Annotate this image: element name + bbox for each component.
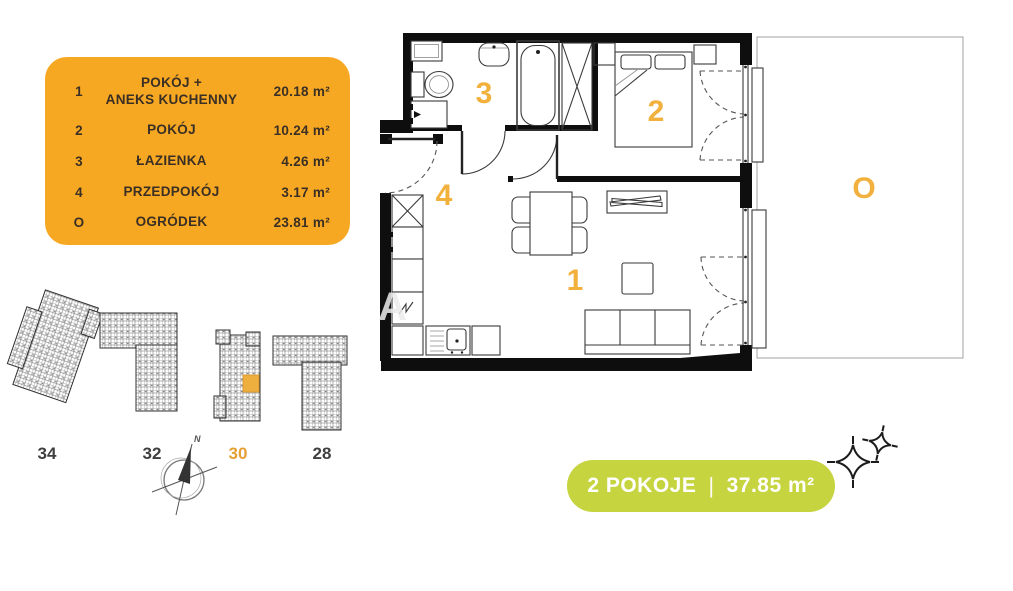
legend-room-number: 4: [61, 185, 97, 200]
legend-room-name: PRZEDPOKÓJ: [97, 184, 246, 201]
legend-room-number: 3: [61, 154, 97, 169]
legend-room-number: 1: [61, 84, 97, 99]
dining-table: [530, 192, 572, 255]
legend-row: 3 ŁAZIENKA 4.26 m²: [61, 153, 330, 170]
nightstand-right: [694, 45, 716, 64]
legend-room-number: O: [61, 215, 97, 230]
watermark-letter: A: [378, 285, 407, 329]
bedroom-door: [513, 135, 557, 179]
bathtub: [517, 41, 559, 130]
wardrobe-closet: [562, 43, 592, 130]
bathroom-sink: [479, 43, 509, 66]
building-34[interactable]: [2, 286, 105, 405]
room-label-living: 1: [567, 264, 584, 297]
compass-icon: N: [152, 434, 217, 515]
legend-room-area: 20.18 m²: [246, 84, 330, 99]
badge-area-label: 37.85 m²: [727, 474, 815, 498]
legend-room-area: 10.24 m²: [246, 123, 330, 138]
highlighted-unit: [243, 375, 259, 392]
building-30[interactable]: [214, 330, 260, 421]
building-32[interactable]: [100, 313, 177, 411]
building-28[interactable]: [273, 336, 347, 430]
floorplan-page: 1 POKÓJ + ANEKS KUCHENNY 20.18 m² 2 POKÓ…: [0, 0, 1013, 591]
legend-room-name: ŁAZIENKA: [97, 153, 246, 170]
room-label-bathroom: 3: [476, 77, 493, 110]
sofa: [585, 310, 690, 354]
compass-north-label: N: [194, 434, 201, 444]
legend-room-number: 2: [61, 123, 97, 138]
room-label-garden: O: [852, 172, 875, 205]
bathroom-shelf: [411, 41, 442, 61]
room-label-bedroom: 2: [648, 95, 665, 128]
building-label-28[interactable]: 28: [313, 444, 332, 463]
living-room: [390, 191, 690, 355]
apartment-summary-badge: 2 POKOJE | 37.85 m²: [567, 460, 835, 512]
legend-room-area: 3.17 m²: [246, 185, 330, 200]
legend-room-area: 4.26 m²: [246, 154, 330, 169]
badge-rooms-label: 2 POKOJE: [587, 474, 696, 498]
toilet: [411, 72, 453, 98]
room-legend: 1 POKÓJ + ANEKS KUCHENNY 20.18 m² 2 POKÓ…: [45, 57, 350, 245]
sparkle-icon-small: [859, 422, 902, 465]
bathroom-door-arc: [462, 131, 505, 174]
badge-separator: |: [708, 473, 714, 499]
sparkle-icon: [827, 436, 879, 488]
dining-set: [512, 192, 587, 255]
legend-row: 1 POKÓJ + ANEKS KUCHENNY 20.18 m²: [61, 75, 330, 109]
shower-unit: [409, 101, 447, 128]
building-label-30[interactable]: 30: [229, 444, 248, 463]
entrance-door: [380, 134, 443, 193]
window-living: [701, 208, 766, 348]
legend-room-name: OGRÓDEK: [97, 214, 246, 231]
coffee-table: [622, 263, 653, 294]
legend-room-name: POKÓJ + ANEKS KUCHENNY: [97, 75, 246, 109]
kitchen-sink: [426, 326, 470, 355]
site-plan: 34 32 30 28: [2, 286, 347, 463]
tv-stand: [607, 191, 667, 213]
building-label-32[interactable]: 32: [143, 444, 162, 463]
room-label-hall: 4: [436, 179, 453, 212]
kitchen-cabinets: [390, 195, 500, 355]
legend-room-name: POKÓJ: [97, 122, 246, 139]
legend-row: 4 PRZEDPOKÓJ 3.17 m²: [61, 184, 330, 201]
legend-room-area: 23.81 m²: [246, 215, 330, 230]
window-bedroom: [700, 65, 763, 163]
legend-row: O OGRÓDEK 23.81 m²: [61, 214, 330, 231]
building-label-34[interactable]: 34: [38, 444, 57, 463]
legend-row: 2 POKÓJ 10.24 m²: [61, 122, 330, 139]
bathroom: [409, 41, 592, 174]
